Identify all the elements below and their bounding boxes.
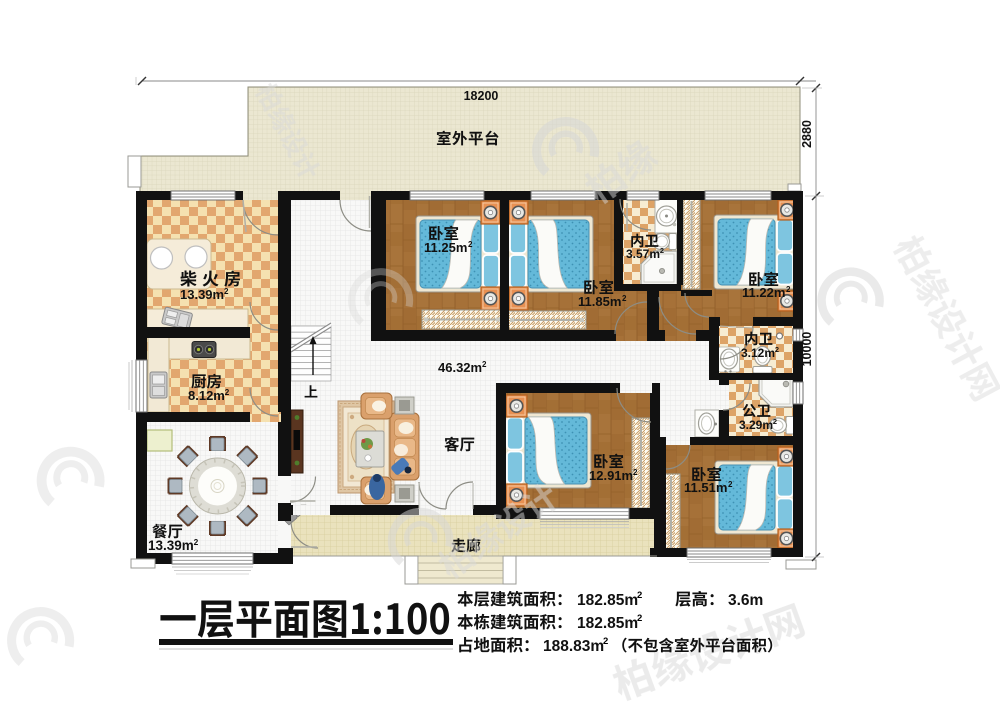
svg-text:3.12m: 3.12m	[741, 346, 775, 360]
svg-text:2: 2	[786, 285, 791, 294]
svg-text:2: 2	[637, 590, 642, 601]
svg-text:188.83m: 188.83m	[543, 638, 604, 655]
svg-text:11.51m: 11.51m	[684, 480, 727, 495]
svg-text:2: 2	[224, 287, 229, 296]
svg-text:2: 2	[660, 246, 664, 255]
svg-text:8.12m: 8.12m	[188, 388, 225, 403]
svg-text:2: 2	[728, 480, 733, 489]
svg-text:10000: 10000	[800, 332, 814, 367]
svg-text:3.29m: 3.29m	[739, 418, 773, 432]
svg-text:11.85m: 11.85m	[578, 294, 621, 309]
svg-text:11.22m: 11.22m	[742, 285, 785, 300]
svg-text:12.91m: 12.91m	[589, 468, 633, 483]
svg-text:13.39m: 13.39m	[148, 538, 194, 553]
svg-text:2: 2	[637, 613, 642, 624]
svg-text:182.85m: 182.85m	[577, 592, 638, 609]
svg-text:2: 2	[482, 360, 487, 369]
svg-text:2: 2	[775, 345, 779, 354]
svg-text:11.25m: 11.25m	[424, 240, 467, 255]
svg-text:2: 2	[468, 240, 473, 249]
svg-text:2: 2	[194, 537, 199, 547]
svg-text:13.39m: 13.39m	[180, 287, 224, 302]
svg-text:2: 2	[773, 417, 777, 426]
svg-text:3.57m: 3.57m	[626, 247, 660, 261]
svg-text:2: 2	[633, 468, 638, 477]
svg-text:2: 2	[225, 388, 230, 397]
svg-text:2: 2	[603, 636, 608, 647]
svg-text:182.85m: 182.85m	[577, 615, 638, 632]
svg-text:3.6m: 3.6m	[728, 592, 763, 609]
svg-text:18200: 18200	[464, 89, 499, 103]
svg-text:2: 2	[622, 294, 627, 303]
svg-text:2880: 2880	[800, 120, 814, 148]
svg-text:46.32m: 46.32m	[438, 360, 482, 375]
